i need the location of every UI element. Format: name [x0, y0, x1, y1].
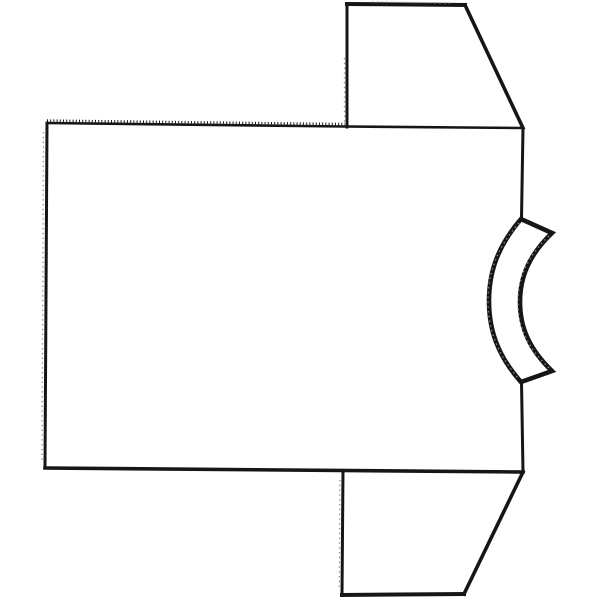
shirt-body-left-edge-texture — [42, 132, 44, 460]
tshirt-line-drawing — [0, 0, 600, 600]
bottom-sleeve-panel — [342, 471, 523, 595]
shirt-body-panel — [45, 123, 523, 472]
bottom-sleeve-left-edge — [342, 471, 343, 595]
top-sleeve-top-edge — [347, 4, 465, 5]
shirt-body-right-edge-upper — [522, 128, 524, 218]
bottom-sleeve-left-edge-texture — [339, 480, 340, 590]
shirt-body-left-edge — [45, 123, 47, 468]
bottom-sleeve-bottom-edge — [342, 594, 464, 595]
drawing-canvas — [0, 0, 600, 600]
shirt-body-right-edge-lower — [522, 382, 524, 472]
top-sleeve-panel — [347, 4, 523, 128]
